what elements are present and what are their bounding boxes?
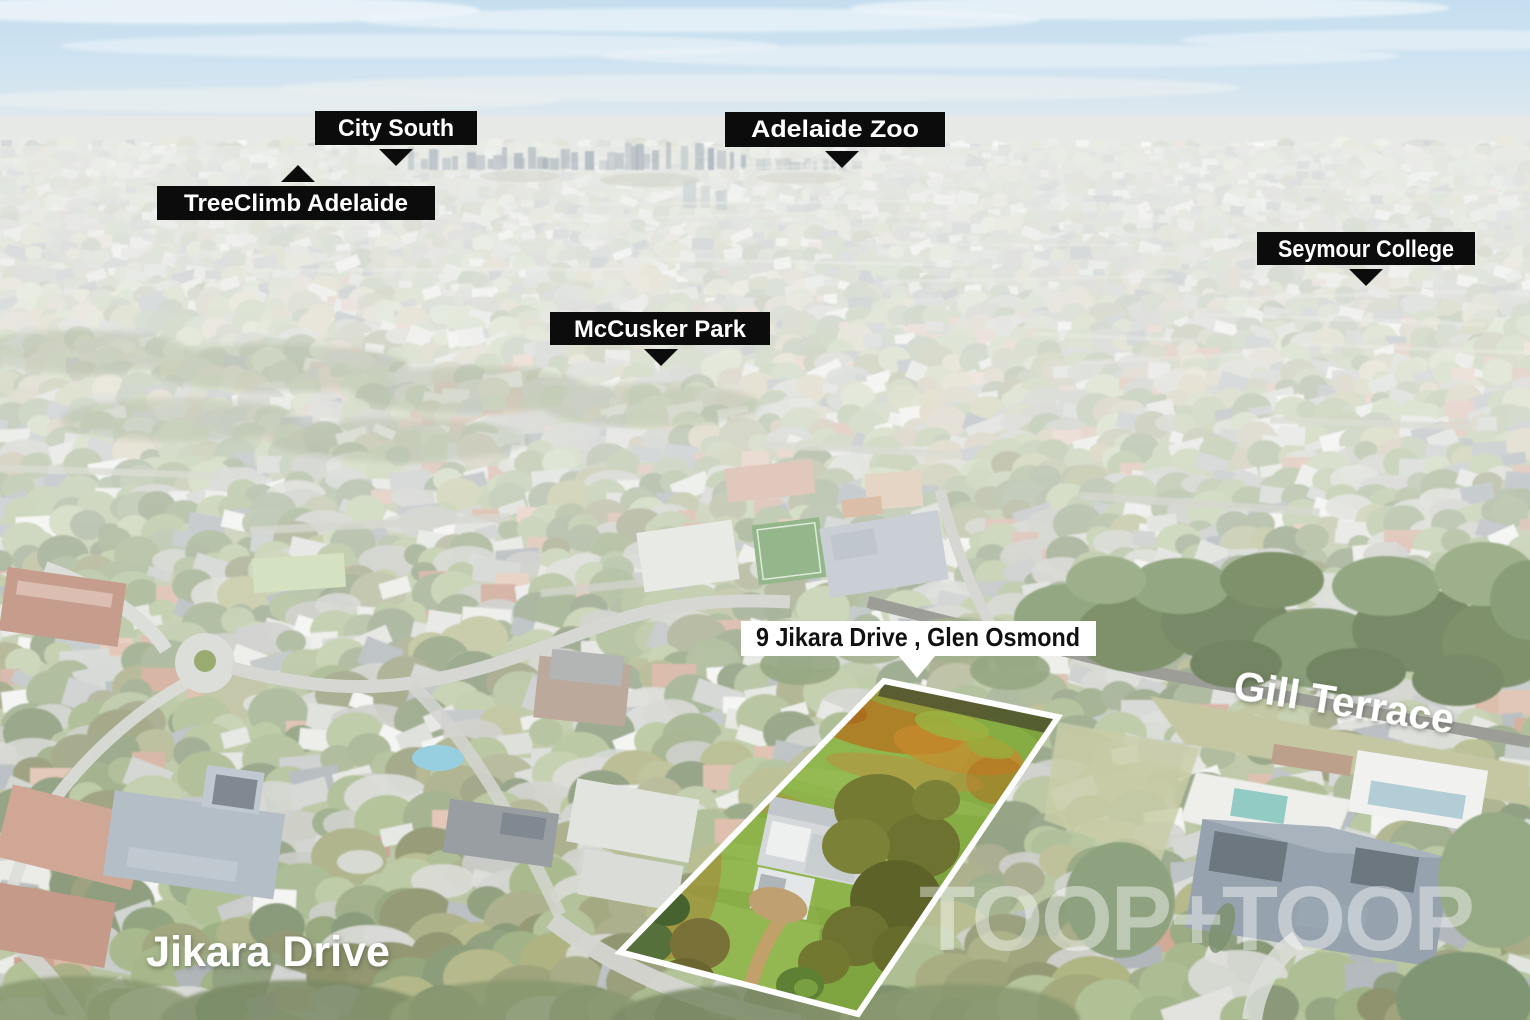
svg-text:9 Jikara Drive , Glen Osmond: 9 Jikara Drive , Glen Osmond [756,622,1080,652]
svg-text:TOOP+TOOP: TOOP+TOOP [919,868,1473,970]
svg-text:TreeClimb Adelaide: TreeClimb Adelaide [184,190,408,217]
svg-text:McCusker Park: McCusker Park [574,316,747,343]
svg-text:Seymour College: Seymour College [1278,236,1454,263]
svg-text:Jikara Drive: Jikara Drive [146,928,390,976]
svg-text:City South: City South [338,115,454,142]
svg-text:Adelaide Zoo: Adelaide Zoo [751,116,919,143]
